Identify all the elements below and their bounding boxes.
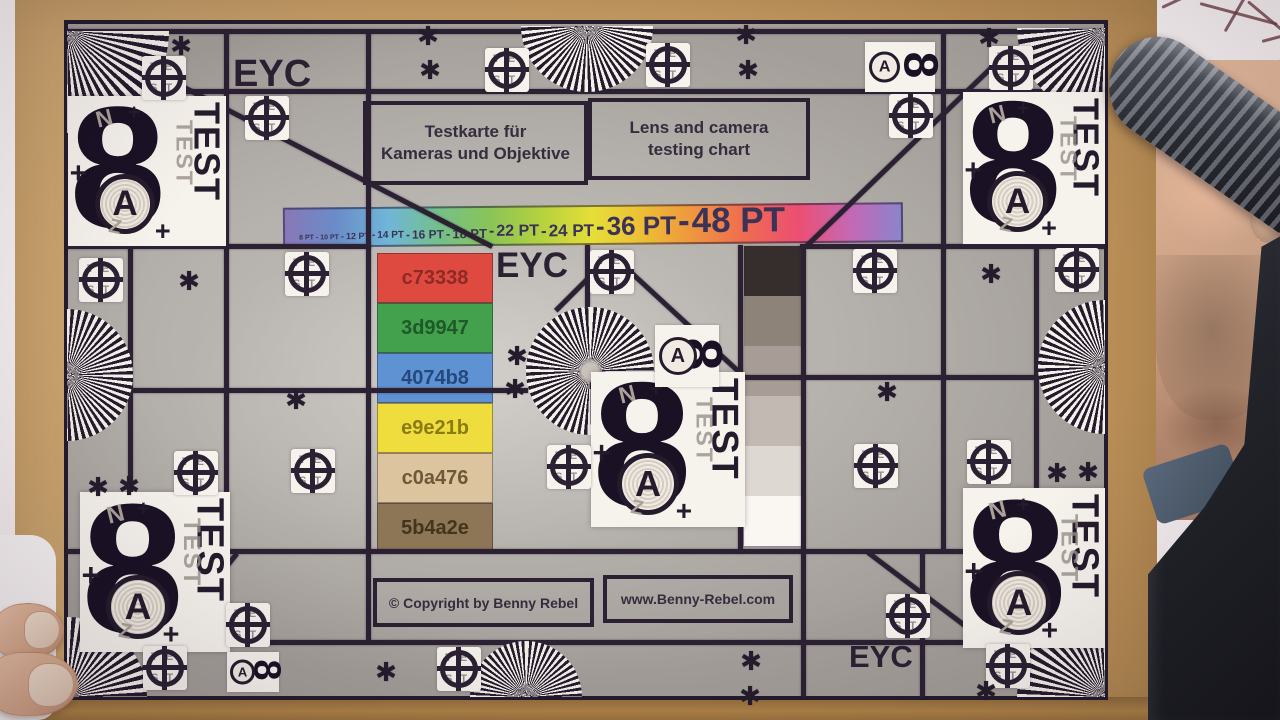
photo-stage: EYC Testkarte für Kameras und Objektive … bbox=[0, 0, 1280, 720]
person bbox=[0, 0, 1280, 720]
